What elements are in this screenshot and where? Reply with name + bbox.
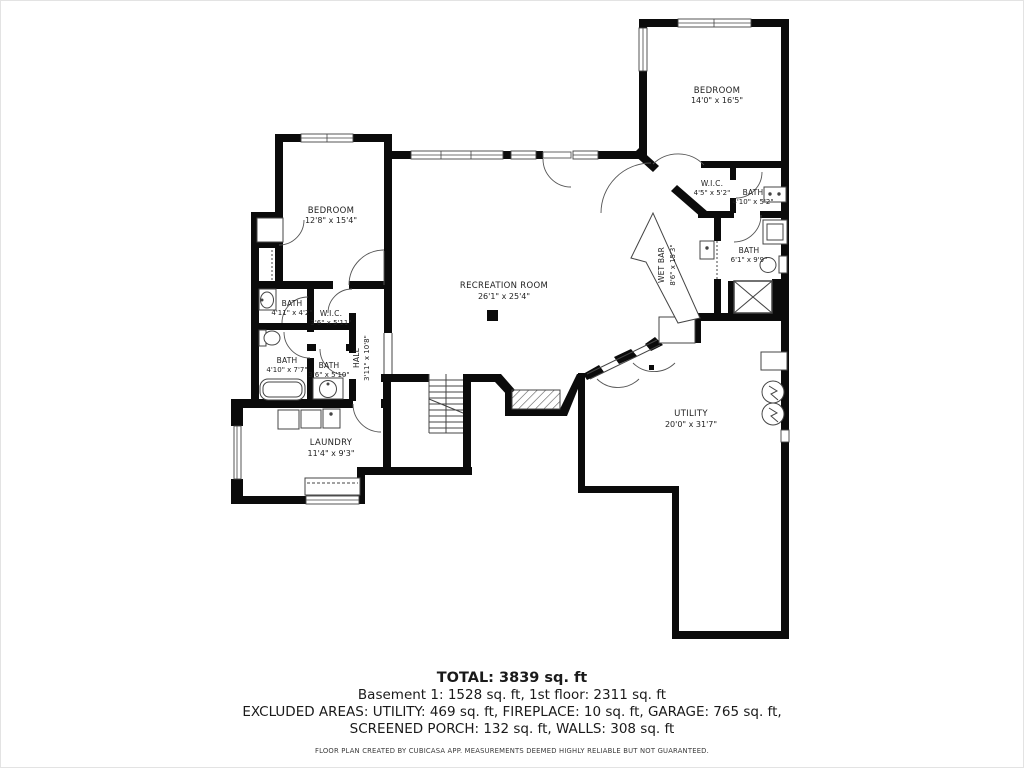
room-dims-wet-bar: 8'6" x 15'3" [669,244,677,285]
wet-bar-sink-icon [700,241,714,259]
vanity-sink-icon [259,289,276,310]
room-dims-bedroom-w: 12'8" x 15'4" [305,216,357,225]
room-label-wic-w: W.I.C. [320,309,342,318]
room-dims-recreation: 26'1" x 25'4" [478,292,530,301]
walls [231,19,789,639]
excluded-areas-text: EXCLUDED AREAS: UTILITY: 469 sq. ft, FIR… [1,704,1023,721]
room-dims-bath-w: 4'10" x 7'7" [266,366,307,374]
door-arc-bath-e [734,215,761,242]
room-dims-bath-ne: 4'10" x 5'2" [732,198,773,206]
chase-icon [734,281,772,313]
room-label-bath-sw: BATH [319,361,340,370]
total-area-text: TOTAL: 3839 sq. ft [1,669,1023,687]
door-arc-vestibule [601,163,651,213]
room-dims-bedroom-ne: 14'0" x 16'5" [691,96,743,105]
room-dims-bath-nw: 4'11" x 4'2" [271,309,312,317]
laundry-counter [305,478,360,495]
door-arc-rec-entry [543,159,571,187]
closet [257,218,283,242]
fireplace-icon [512,390,560,409]
bathtub-icon [260,379,305,400]
shower-icon [763,220,787,244]
room-label-recreation: RECREATION ROOM [460,281,548,291]
excluded-areas-text-2: SCREENED PORCH: 132 sq. ft, WALLS: 308 s… [1,721,1023,738]
door-arc-bedroom-w [349,250,384,285]
room-label-bedroom-ne: BEDROOM [694,86,740,96]
washer-dryer-icon [278,410,321,429]
room-label-laundry: LAUNDRY [310,438,353,448]
room-dims-bath-e: 6'1" x 9'9" [731,256,768,264]
round-sink-icon [313,378,343,399]
water-heater-icon [761,352,787,425]
laundry-sink-icon [323,409,340,428]
door-arc-bath-w [284,332,310,358]
stairs-icon [429,374,463,433]
room-dims-wic-ne: 4'5" x 5'2" [694,189,731,197]
room-label-bath-ne: BATH [743,188,764,197]
room-dims-laundry: 11'4" x 9'3" [307,449,354,458]
room-label-wic-ne: W.I.C. [701,179,723,188]
door-arc-bedroom-ne [653,154,704,165]
disclaimer-text: FLOOR PLAN CREATED BY CUBICASA APP. MEAS… [1,747,1023,755]
area-summary: TOTAL: 3839 sq. ft Basement 1: 1528 sq. … [1,669,1023,755]
room-label-bedroom-w: BEDROOM [308,206,354,216]
floor-plan-canvas: BEDROOM 14'0" x 16'5" BEDROOM 12'8" x 15… [1,1,1024,768]
floor-plan-page: BEDROOM 14'0" x 16'5" BEDROOM 12'8" x 15… [0,0,1024,768]
room-label-bath-e: BATH [739,246,760,255]
room-dims-hall: 3'11" x 10'8" [363,335,371,381]
room-label-hall: HALL [352,347,361,368]
room-dims-wic-w: 3'6" x 5'11" [310,319,351,327]
door-arc-utility-2 [597,379,639,388]
room-dims-utility: 20'0" x 31'7" [665,420,717,429]
room-label-wet-bar: WET BAR [657,247,666,283]
floor-areas-text: Basement 1: 1528 sq. ft, 1st floor: 2311… [1,687,1023,704]
room-dims-bath-sw: 3'6" x 5'10" [308,371,349,379]
toilet-icon [259,330,280,346]
room-label-utility: UTILITY [674,409,708,419]
door-arc-laundry [353,404,381,432]
room-label-bath-nw: BATH [282,299,303,308]
room-label-bath-w: BATH [277,356,298,365]
